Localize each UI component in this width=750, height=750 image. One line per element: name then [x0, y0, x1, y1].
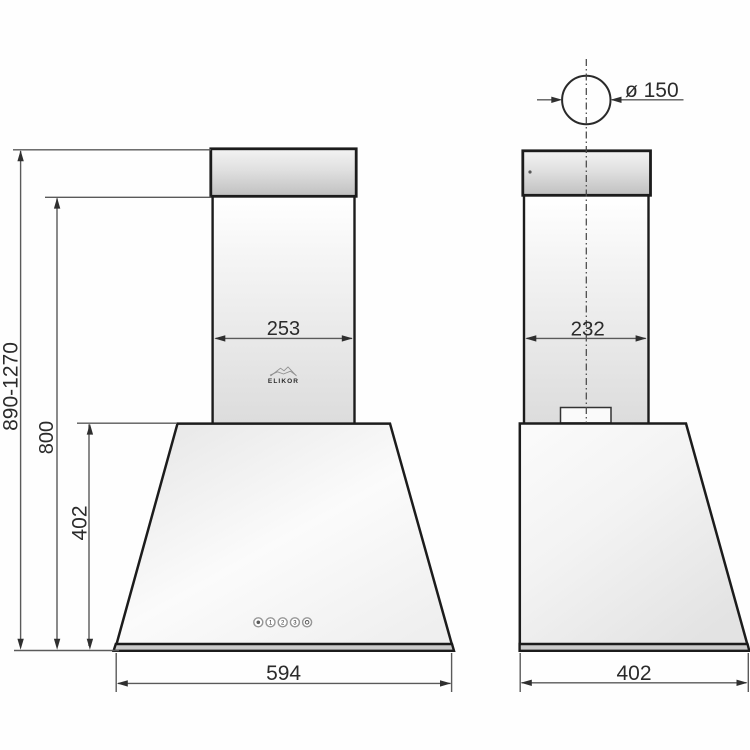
- svg-text:890-1270: 890-1270: [0, 342, 23, 431]
- svg-text:253: 253: [267, 318, 300, 340]
- svg-text:402: 402: [616, 662, 651, 685]
- svg-text:232: 232: [571, 317, 605, 340]
- svg-text:402: 402: [69, 505, 92, 540]
- svg-text:ELIKOR: ELIKOR: [268, 378, 299, 385]
- svg-text:ø 150: ø 150: [625, 79, 679, 102]
- svg-text:800: 800: [36, 421, 58, 454]
- svg-text:594: 594: [266, 662, 301, 685]
